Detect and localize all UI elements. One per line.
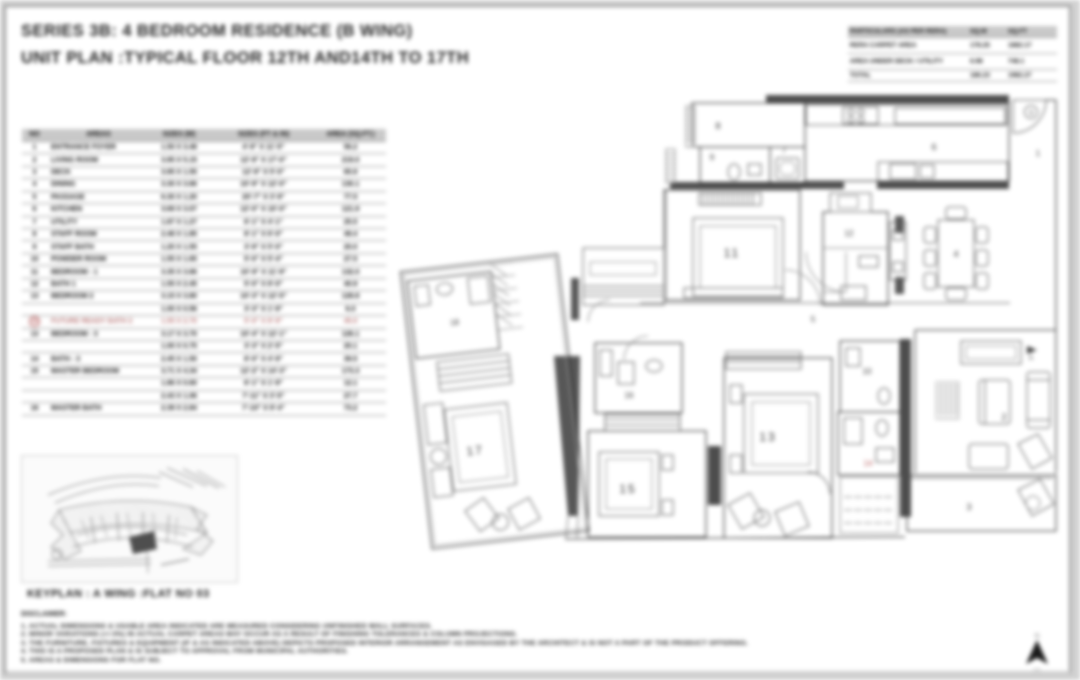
svg-text:15: 15 bbox=[619, 482, 636, 496]
svg-text:14: 14 bbox=[864, 459, 873, 468]
svg-text:13: 13 bbox=[759, 430, 776, 444]
svg-text:1: 1 bbox=[1036, 149, 1041, 158]
svg-text:3: 3 bbox=[1029, 110, 1033, 117]
svg-text:A: A bbox=[1029, 355, 1034, 362]
svg-text:9: 9 bbox=[710, 153, 715, 162]
svg-text:17: 17 bbox=[466, 443, 485, 459]
svg-text:16: 16 bbox=[625, 391, 634, 400]
svg-text:4: 4 bbox=[953, 249, 958, 259]
svg-text:5: 5 bbox=[811, 315, 816, 324]
svg-text:N: N bbox=[1034, 633, 1039, 640]
svg-text:3: 3 bbox=[966, 502, 971, 512]
svg-text:12: 12 bbox=[845, 229, 854, 238]
svg-text:18: 18 bbox=[450, 317, 460, 327]
svg-text:xxx: xxx bbox=[1033, 667, 1041, 672]
svg-text:10: 10 bbox=[863, 367, 872, 376]
svg-text:8: 8 bbox=[715, 121, 720, 131]
svg-text:6: 6 bbox=[931, 142, 936, 152]
svg-text:11: 11 bbox=[724, 246, 740, 260]
svg-text:2: 2 bbox=[1001, 412, 1006, 422]
svg-text:7: 7 bbox=[782, 146, 787, 155]
